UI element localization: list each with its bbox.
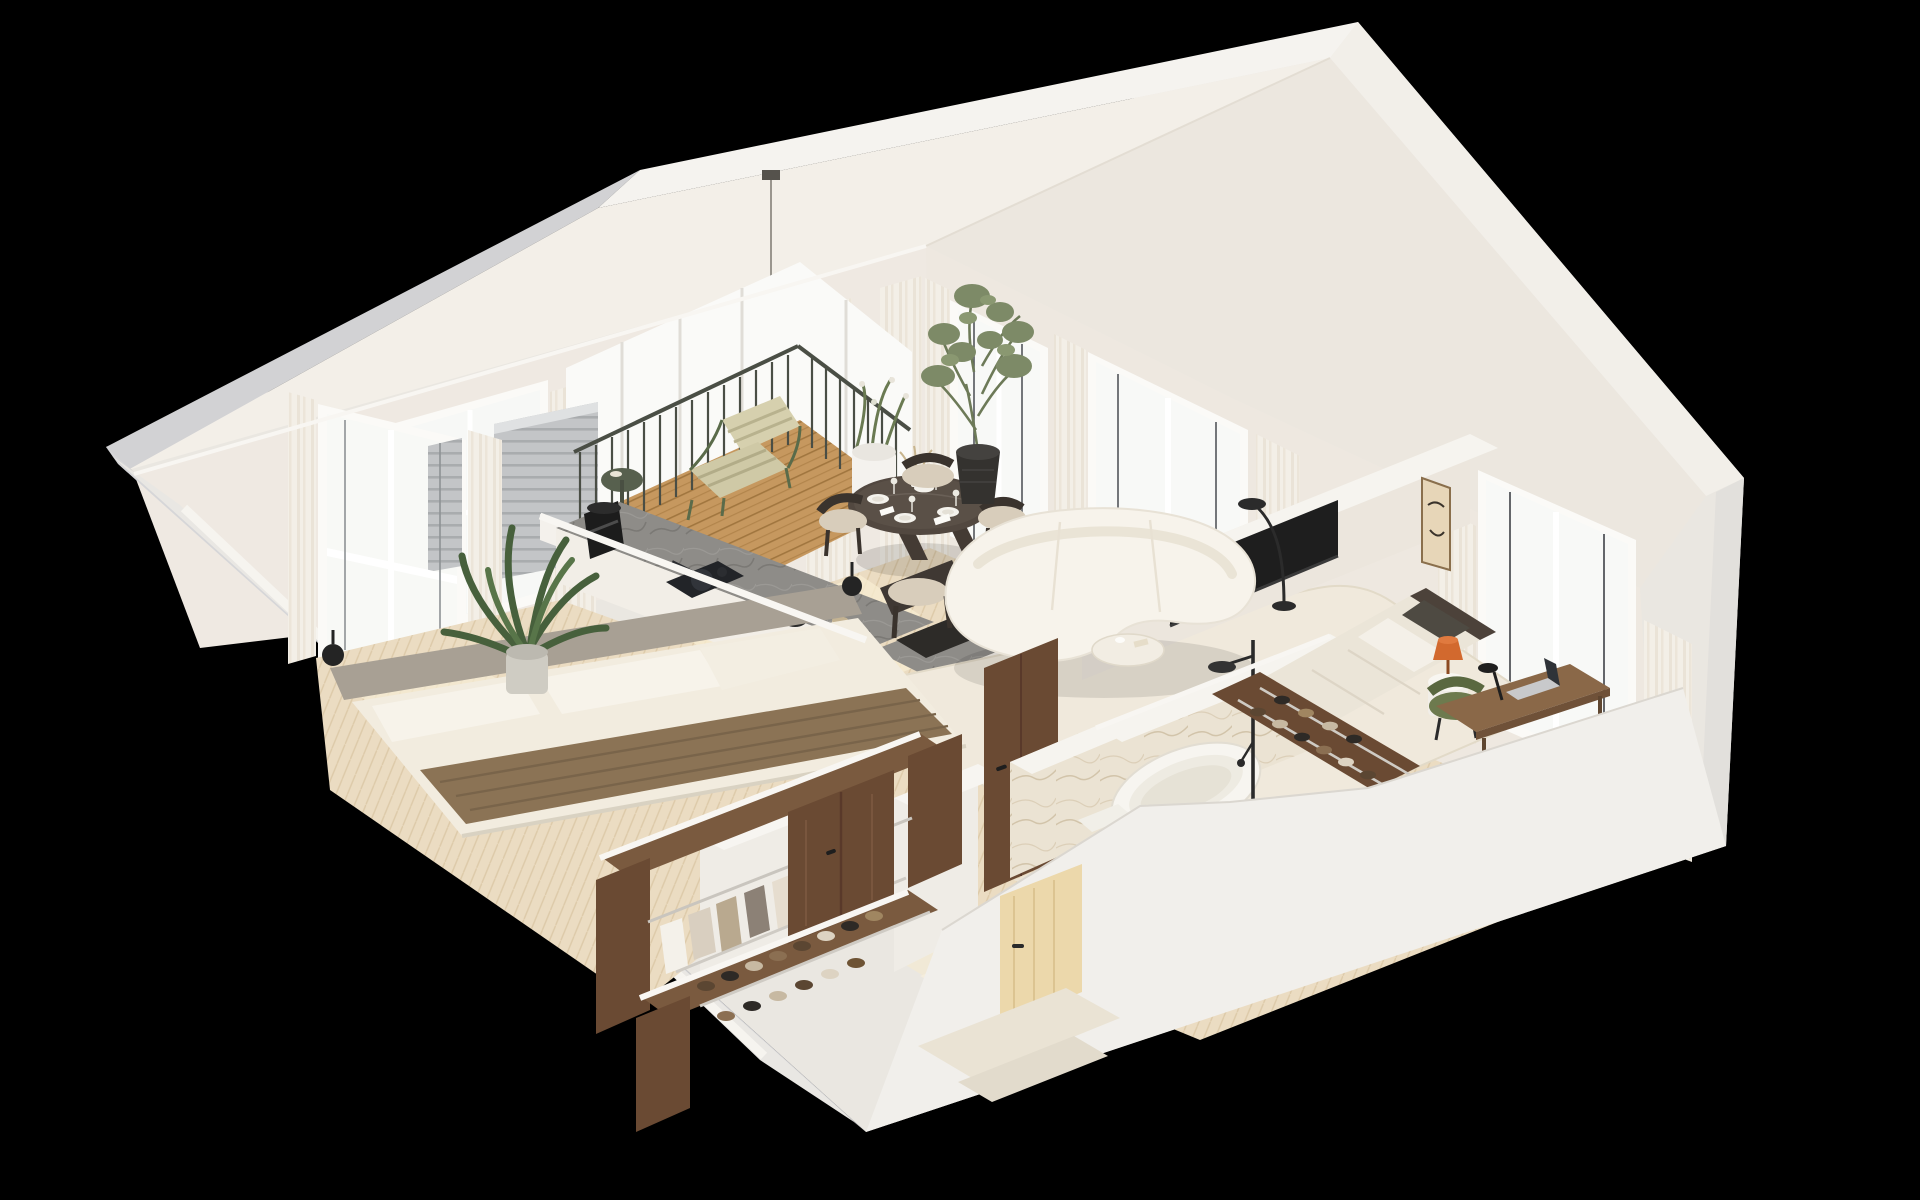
door-handle bbox=[1012, 944, 1024, 948]
dining-chair bbox=[902, 457, 954, 488]
curtain bbox=[288, 392, 316, 664]
apartment-isometric-render bbox=[0, 0, 1920, 1200]
slatted-screen-through-glass bbox=[428, 438, 462, 572]
floorplan-render-stage bbox=[0, 0, 1920, 1200]
bedroom2-wall-art bbox=[1422, 478, 1450, 570]
ball-sconce bbox=[322, 644, 344, 666]
coffee-table bbox=[1092, 634, 1164, 666]
ball-sconce bbox=[842, 576, 862, 596]
